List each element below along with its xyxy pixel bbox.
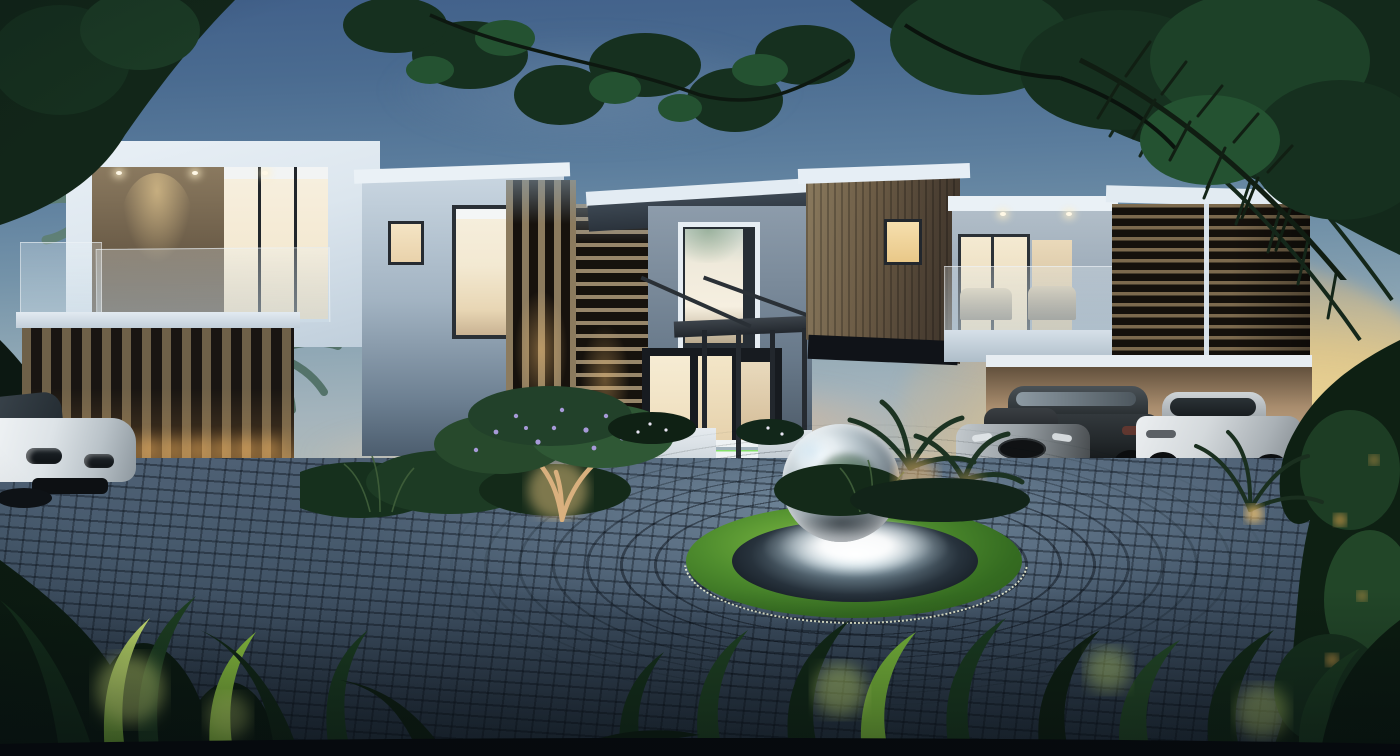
suv-body [0,418,136,482]
fence-top-rail [16,312,300,328]
white-suv-left [0,392,142,510]
tree-canopy [0,0,1400,280]
suv-headlight [84,454,114,468]
foreground-foliage [0,500,1400,756]
suv-headlight [26,448,62,464]
villa-dusk-rendering [0,0,1400,756]
